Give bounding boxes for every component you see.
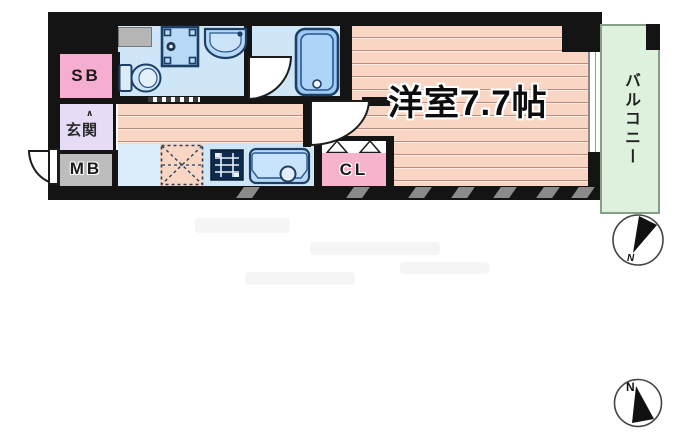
entrance-step-mark: ∧ <box>86 108 93 119</box>
storage-box: SB <box>60 52 112 100</box>
wall-storage-entrance-divider <box>58 98 118 104</box>
wall-top <box>48 12 602 26</box>
wall-bath-right <box>340 12 352 104</box>
compass-icon-2: N <box>612 377 664 429</box>
wall-top-right-pillar <box>562 26 602 52</box>
kitchen-sink-icon <box>248 147 311 185</box>
watermark-fragment <box>310 242 440 255</box>
wash-basin-icon <box>202 26 249 61</box>
wall-bottom <box>48 186 602 200</box>
entrance-label: 玄関 <box>66 119 98 140</box>
floor-plan: SB ∧ 玄関 MB CL <box>0 0 700 442</box>
laundry-space-floor <box>118 144 160 186</box>
bathtub-icon <box>294 27 340 97</box>
closet: CL <box>322 153 386 186</box>
watermark-fragment <box>195 218 290 233</box>
wall-left-upper <box>48 12 60 150</box>
watermark-fragment <box>245 272 355 285</box>
balcony: バルコニー <box>600 24 660 214</box>
wall-meter-right <box>112 152 118 186</box>
balcony-label: バルコニー <box>618 72 642 167</box>
watermark-fragment <box>400 262 490 274</box>
meter-box-label: MB <box>70 159 102 179</box>
washing-machine-pan-icon <box>160 25 200 68</box>
entry-door-leaf <box>48 148 59 185</box>
wall-closet-right <box>386 136 394 186</box>
meter-box: MB <box>60 152 112 186</box>
refrigerator-space-x-icon <box>160 144 204 186</box>
compass-icon: N <box>610 212 666 268</box>
wall-balcony-top-right <box>646 24 660 50</box>
toilet-icon <box>118 61 162 96</box>
washroom-shelf <box>118 27 152 47</box>
svg-text:N: N <box>627 253 635 264</box>
stove-icon <box>210 149 244 181</box>
refrigerator-space <box>160 144 204 186</box>
svg-text:N: N <box>626 380 635 394</box>
storage-box-label: SB <box>71 66 101 86</box>
wall-entrance-right <box>113 104 116 150</box>
entrance-area: ∧ 玄関 <box>60 104 114 150</box>
closet-label: CL <box>340 160 369 180</box>
washroom-opening-threshold <box>148 97 200 102</box>
main-room-label: 洋室7.7帖 <box>388 75 548 126</box>
wall-entrance-meter-divider <box>58 150 118 154</box>
window-center-line <box>595 52 596 152</box>
